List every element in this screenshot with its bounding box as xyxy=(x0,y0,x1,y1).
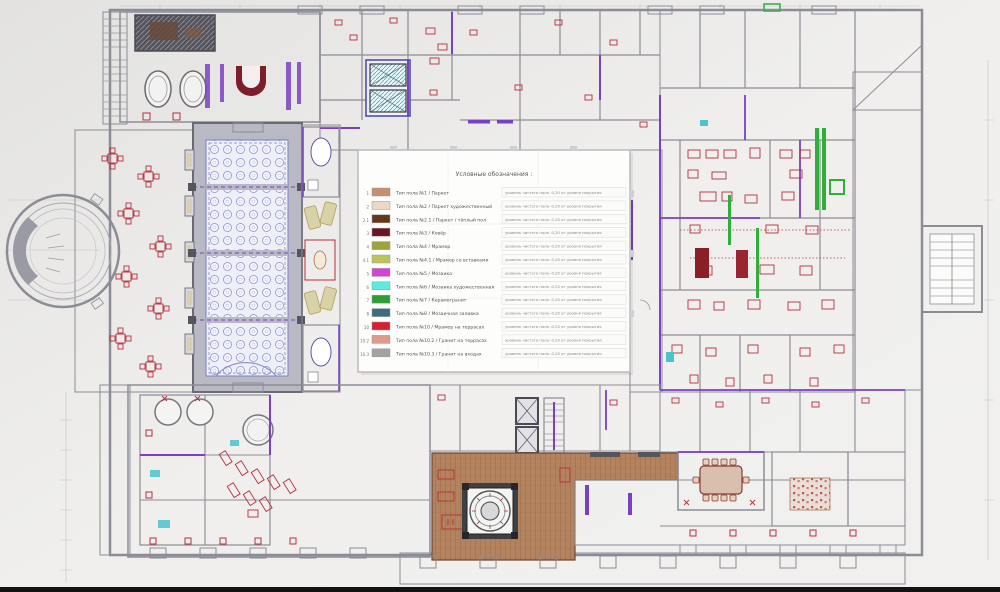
stairs-right-annex xyxy=(922,226,982,312)
legend-row-label: Тип пола №1 / Паркет xyxy=(395,191,449,197)
video-letterbox xyxy=(0,587,1000,592)
legend-swatch xyxy=(372,255,390,263)
legend-row-note: уровень чистого пола -0,20 от уровня пок… xyxy=(505,203,602,208)
patterned-carpet xyxy=(790,478,830,510)
floor-medallion xyxy=(462,483,518,539)
legend-row-note: уровень чистого пола -0,20 от уровня пок… xyxy=(505,351,602,356)
legend-swatch xyxy=(372,215,390,223)
legend-row-index: 10.3 xyxy=(360,352,369,357)
legend-row-note: уровень чистого пола -0,20 от уровня пок… xyxy=(505,244,602,249)
legend-row-note: уровень чистого пола -0,20 от уровня пок… xyxy=(505,270,602,275)
legend-row-label: Тип пола №10.3 / Гранит на входах xyxy=(395,351,482,357)
legend-row-index: 4.1 xyxy=(363,258,370,263)
legend-row-index: 2.1 xyxy=(363,218,370,223)
legend-swatch xyxy=(372,349,390,357)
legend-row-label: Тип пола №5 / Мозаика xyxy=(395,271,452,277)
dark-red-equipment-2 xyxy=(736,250,748,278)
legend-swatch xyxy=(372,309,390,317)
legend-swatch xyxy=(372,201,390,209)
legend-row-label: Тип пола №8 / Мозаичная заливка xyxy=(395,311,479,317)
dark-red-equipment-1 xyxy=(695,248,709,278)
legend-swatch xyxy=(372,282,390,290)
legend-row-note: уровень чистого пола -0,20 от уровня пок… xyxy=(505,257,602,262)
legend-row-note: уровень чистого пола -0,20 от уровня пок… xyxy=(505,337,602,342)
legend-swatch xyxy=(372,242,390,250)
legend-swatch xyxy=(372,335,390,343)
legend-row-label: Тип пола №3 / Ковёр xyxy=(395,231,446,237)
floor-plan-screenshot: Условные обозначения : 1Тип пола №1 / Па… xyxy=(0,0,1000,592)
legend-row-note: уровень чистого пола -0,20 от уровня пок… xyxy=(505,190,602,195)
legend-row-label: Тип пола №4 / Мрамор xyxy=(395,244,450,250)
legend-row-label: Тип пола №2.1 / Паркет / тёплый пол xyxy=(395,216,486,223)
legend-row-note: уровень чистого пола -0,20 от уровня пок… xyxy=(505,297,602,302)
dining-table xyxy=(700,466,742,494)
legend-row-index: 10 xyxy=(364,325,370,330)
legend-row-label: Тип пола №7 / Керамогранит xyxy=(395,298,467,304)
legend-row-note: уровень чистого пола -0,20 от уровня пок… xyxy=(505,311,602,316)
legend-sheet: Условные обозначения : 1Тип пола №1 / Па… xyxy=(358,146,634,375)
legend-row-index: 10.2 xyxy=(360,338,369,343)
legend-row-label: Тип пола №10.2 / Гранит на террасах xyxy=(395,338,487,344)
legend-row-label: Тип пола №10 / Мрамор на террасах xyxy=(395,325,484,331)
floor-plan-drawing: Условные обозначения : 1Тип пола №1 / Па… xyxy=(0,0,1000,592)
legend-row-note: уровень чистого пола -0,20 от уровня пок… xyxy=(505,284,602,289)
legend-row-label: Тип пола №6 / Мозаика художественная xyxy=(395,284,494,290)
legend-swatch xyxy=(372,322,390,330)
legend-swatch xyxy=(372,228,390,236)
legend-swatch xyxy=(372,295,390,303)
legend-title: Условные обозначения : xyxy=(456,171,533,178)
legend-row-note: уровень чистого пола -0,20 от уровня пок… xyxy=(505,324,602,329)
legend-row-label: Тип пола №4.1 / Мрамор со вставками xyxy=(395,258,488,264)
legend-row-note: уровень чистого пола -0,20 от уровня пок… xyxy=(505,217,602,222)
grand-hall-floor xyxy=(206,140,288,376)
round-pool xyxy=(243,415,273,445)
legend-swatch xyxy=(372,188,390,196)
legend-row-note: уровень чистого пола -0,20 от уровня пок… xyxy=(505,230,602,235)
legend-swatch xyxy=(372,268,390,276)
legend-row-label: Тип пола №2 / Паркет художественный xyxy=(395,203,492,210)
grand-hall xyxy=(185,123,305,392)
